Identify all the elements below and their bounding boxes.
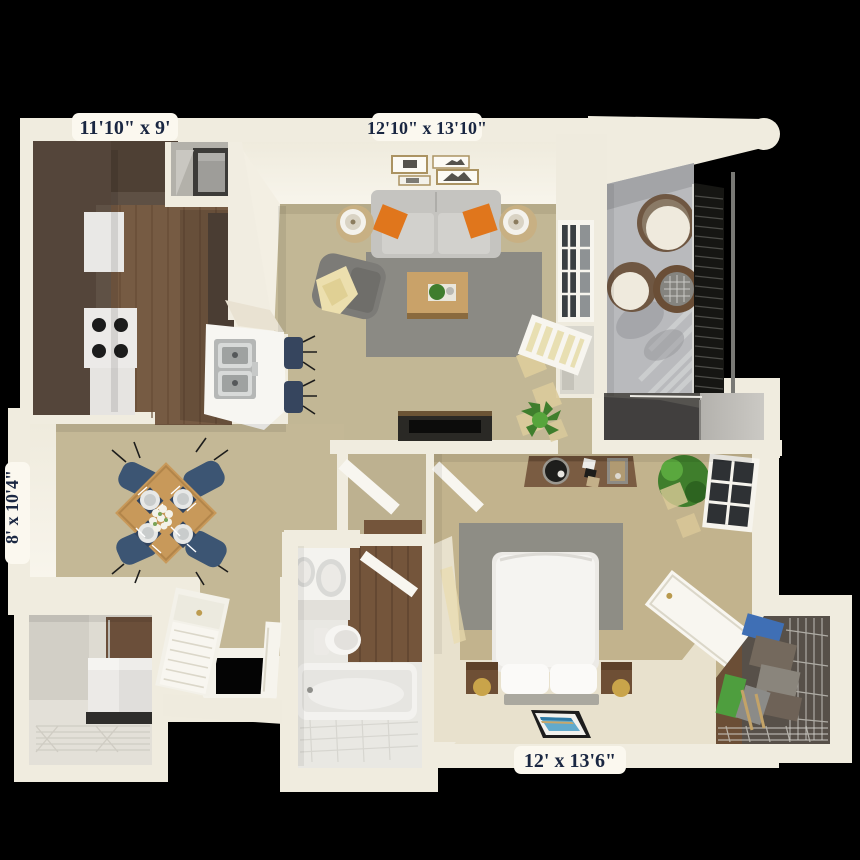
svg-text:12' x 13'6": 12' x 13'6" xyxy=(524,750,616,772)
svg-text:11'10" x 9': 11'10" x 9' xyxy=(79,117,170,139)
svg-text:12'10" x 13'10": 12'10" x 13'10" xyxy=(367,118,487,138)
svg-text:8' x 10'4": 8' x 10'4" xyxy=(2,470,22,544)
